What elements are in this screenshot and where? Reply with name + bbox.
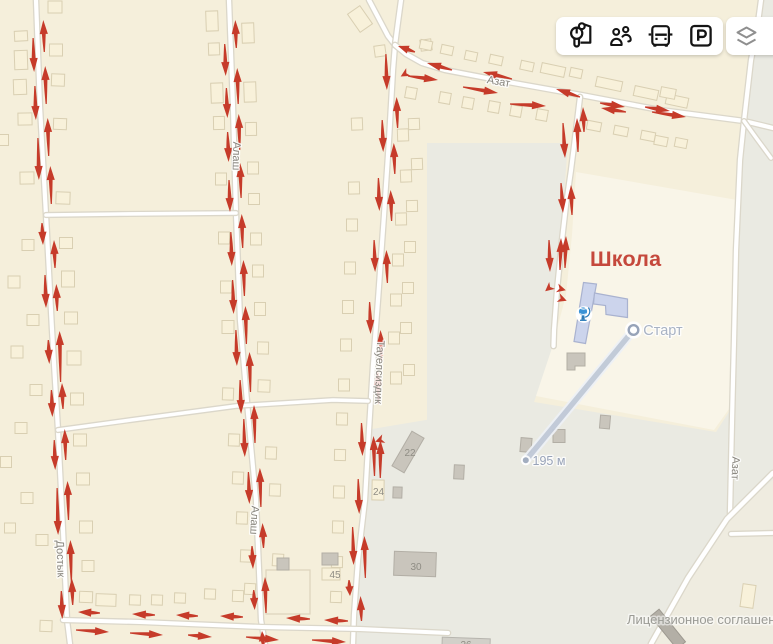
svg-text:Лицензионное соглашение: Лицензионное соглашение bbox=[627, 612, 773, 627]
svg-text:22: 22 bbox=[404, 448, 416, 459]
svg-text:Достык: Достык bbox=[53, 540, 66, 578]
svg-text:45: 45 bbox=[329, 570, 341, 581]
svg-text:Школа: Школа bbox=[590, 247, 662, 271]
svg-text:Старт: Старт bbox=[643, 323, 683, 339]
svg-text:Алаш: Алаш bbox=[230, 142, 243, 171]
svg-text:Тауелсиздик: Тауелсиздик bbox=[372, 340, 386, 404]
svg-text:Азат: Азат bbox=[729, 456, 742, 480]
svg-text:26: 26 bbox=[460, 640, 472, 644]
svg-text:Алаш: Алаш bbox=[247, 506, 260, 535]
svg-text:24: 24 bbox=[373, 487, 385, 498]
svg-text:30: 30 bbox=[410, 562, 422, 573]
svg-text:195 м: 195 м bbox=[533, 454, 566, 468]
